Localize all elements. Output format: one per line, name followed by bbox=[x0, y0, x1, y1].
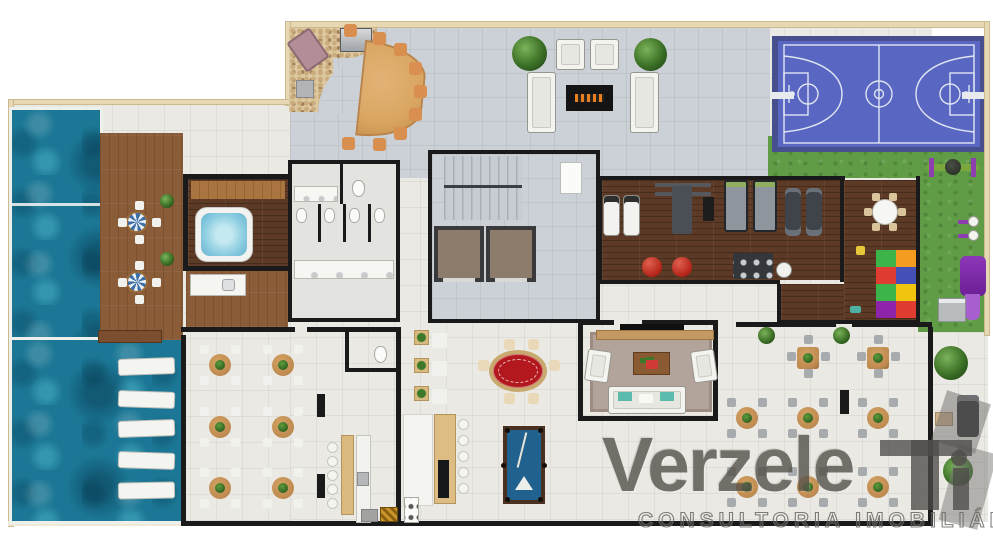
lounge-plant bbox=[512, 36, 547, 71]
deck-plant bbox=[160, 194, 174, 208]
wall-pillar bbox=[317, 394, 325, 417]
wall bbox=[183, 174, 290, 179]
wall bbox=[340, 164, 343, 204]
armchair bbox=[584, 348, 612, 383]
basketball-hoop-right bbox=[962, 92, 986, 99]
spring-rider-seat bbox=[968, 230, 979, 241]
door-leaf bbox=[560, 162, 582, 194]
wall bbox=[181, 335, 186, 526]
armchair bbox=[690, 348, 718, 383]
bar-stool bbox=[328, 443, 337, 452]
treadmill bbox=[753, 180, 777, 232]
wall bbox=[777, 320, 920, 324]
wall-outer-top bbox=[285, 21, 990, 28]
stall-wall bbox=[343, 204, 346, 242]
party-table bbox=[272, 477, 294, 499]
toilet bbox=[324, 208, 335, 223]
wall bbox=[183, 174, 188, 271]
pool-lounger bbox=[118, 482, 175, 500]
massage-sink bbox=[222, 279, 235, 291]
wall-terrace-top bbox=[8, 99, 292, 105]
bar-stool bbox=[459, 420, 468, 429]
bistro-table bbox=[414, 330, 429, 345]
basketball-court-markings bbox=[772, 36, 986, 152]
toilet bbox=[349, 208, 360, 223]
stairs-divider bbox=[444, 185, 522, 188]
billiard-pocket bbox=[505, 428, 510, 433]
massage-counter bbox=[190, 274, 246, 296]
watermark-logo-i-dot bbox=[951, 450, 967, 466]
poker-table-markings bbox=[498, 359, 538, 383]
party-table bbox=[209, 416, 231, 438]
watermark-tagline: CONSULTORIA IMOBILIÁRIA bbox=[638, 509, 993, 533]
stall-wall bbox=[368, 204, 371, 242]
toilet bbox=[352, 180, 365, 197]
party-table bbox=[209, 477, 231, 499]
restroom-sink-counter bbox=[294, 260, 394, 279]
media-console bbox=[596, 330, 714, 340]
party-table bbox=[209, 354, 231, 376]
elevator-sill bbox=[443, 278, 475, 282]
armchair bbox=[590, 39, 619, 70]
exercise-ball bbox=[672, 257, 692, 277]
elliptical bbox=[806, 188, 822, 236]
tv bbox=[620, 324, 684, 330]
foam-play-mat bbox=[876, 250, 916, 318]
stall-wall bbox=[318, 204, 321, 242]
seesaw-post bbox=[971, 158, 976, 177]
wall bbox=[396, 327, 401, 523]
basketball-hoop-left bbox=[770, 92, 794, 99]
bistro-table bbox=[414, 358, 429, 373]
dumbbell-rack bbox=[733, 253, 773, 279]
wall bbox=[183, 266, 290, 271]
floor-mat-gold bbox=[380, 507, 398, 522]
kitchen-sink bbox=[357, 472, 369, 486]
plant bbox=[833, 327, 850, 344]
game-bar-cabinets bbox=[403, 414, 433, 506]
wall bbox=[288, 318, 400, 322]
kids-room-floor bbox=[781, 284, 844, 320]
seesaw-hub bbox=[945, 159, 961, 175]
wall bbox=[428, 319, 600, 323]
stairs bbox=[444, 156, 522, 220]
gym-bench bbox=[623, 195, 640, 236]
watermark-logo-i-stem bbox=[953, 468, 969, 510]
floor-mat-gray bbox=[361, 509, 378, 522]
deck-console bbox=[98, 330, 162, 343]
deck-plant bbox=[160, 252, 174, 266]
toy bbox=[850, 306, 861, 313]
wall-pillar bbox=[840, 390, 849, 414]
party-table bbox=[867, 476, 889, 498]
pool-deck bbox=[100, 133, 183, 340]
tree bbox=[934, 346, 968, 380]
elevator-car bbox=[486, 226, 536, 282]
elliptical bbox=[785, 188, 801, 236]
sauna-bench bbox=[191, 181, 285, 199]
playhouse bbox=[938, 298, 966, 322]
chair bbox=[373, 32, 386, 45]
elevator-car bbox=[434, 226, 484, 282]
wall bbox=[578, 320, 583, 421]
wall bbox=[916, 176, 920, 324]
billiard-rack bbox=[515, 476, 533, 490]
gym-side-table bbox=[776, 262, 792, 278]
wall-pillar bbox=[317, 474, 325, 498]
exercise-ball bbox=[642, 257, 662, 277]
treadmill bbox=[724, 180, 748, 232]
toy bbox=[856, 246, 865, 255]
wall bbox=[396, 160, 400, 322]
party-table bbox=[272, 354, 294, 376]
hot-tub-water bbox=[201, 213, 247, 256]
wall bbox=[598, 280, 780, 284]
deck-table bbox=[126, 271, 148, 293]
poker-chair bbox=[504, 339, 515, 350]
kids-chair bbox=[898, 208, 906, 216]
floorplan-canvas: Verzele CONSULTORIA IMOBILIÁRIA bbox=[0, 0, 993, 553]
wall-terrace-bottom bbox=[8, 521, 186, 526]
wall bbox=[307, 327, 401, 332]
sofa bbox=[527, 72, 556, 133]
party-table bbox=[867, 407, 889, 429]
basketball-court bbox=[772, 36, 986, 152]
wall bbox=[345, 368, 399, 372]
pool-lounger bbox=[118, 390, 176, 409]
kids-table bbox=[872, 199, 898, 225]
wall bbox=[181, 327, 295, 332]
toilet bbox=[374, 208, 385, 223]
sofa-cushion bbox=[618, 392, 632, 401]
pool-upper bbox=[12, 110, 100, 340]
coffee-table-box bbox=[646, 360, 658, 369]
pool-lounger bbox=[118, 357, 176, 376]
pool-lounger bbox=[118, 451, 176, 470]
wall bbox=[345, 327, 349, 372]
deck-table bbox=[126, 211, 148, 233]
party-table bbox=[272, 416, 294, 438]
party-table bbox=[867, 347, 889, 369]
slide-tower bbox=[960, 256, 986, 296]
spring-rider-seat bbox=[968, 216, 979, 227]
slide-chute bbox=[965, 294, 980, 320]
squat-rack bbox=[672, 186, 692, 234]
wall bbox=[596, 150, 600, 323]
sofa bbox=[630, 72, 659, 133]
gym-mat bbox=[703, 197, 714, 221]
toilet bbox=[296, 208, 307, 223]
restroom-sink-counter bbox=[294, 186, 338, 202]
fireplace-flames bbox=[575, 94, 604, 102]
gym-bench bbox=[603, 195, 620, 236]
cooktop bbox=[438, 460, 449, 498]
armchair bbox=[556, 39, 585, 70]
elevator-sill bbox=[495, 278, 527, 282]
bbq-sink bbox=[296, 80, 314, 98]
toilet bbox=[374, 346, 387, 363]
bar-counter bbox=[341, 435, 354, 515]
pool-lounger bbox=[118, 419, 176, 438]
watermark-logo-t-stem bbox=[911, 440, 939, 510]
lounge-plant bbox=[634, 38, 667, 71]
bistro-table bbox=[414, 386, 429, 401]
pool-lane-line bbox=[12, 203, 100, 206]
stove bbox=[404, 497, 419, 523]
watermark-brand: Verzele bbox=[602, 421, 853, 510]
plant bbox=[758, 327, 775, 344]
seesaw-post bbox=[929, 158, 934, 177]
party-table bbox=[797, 347, 819, 369]
